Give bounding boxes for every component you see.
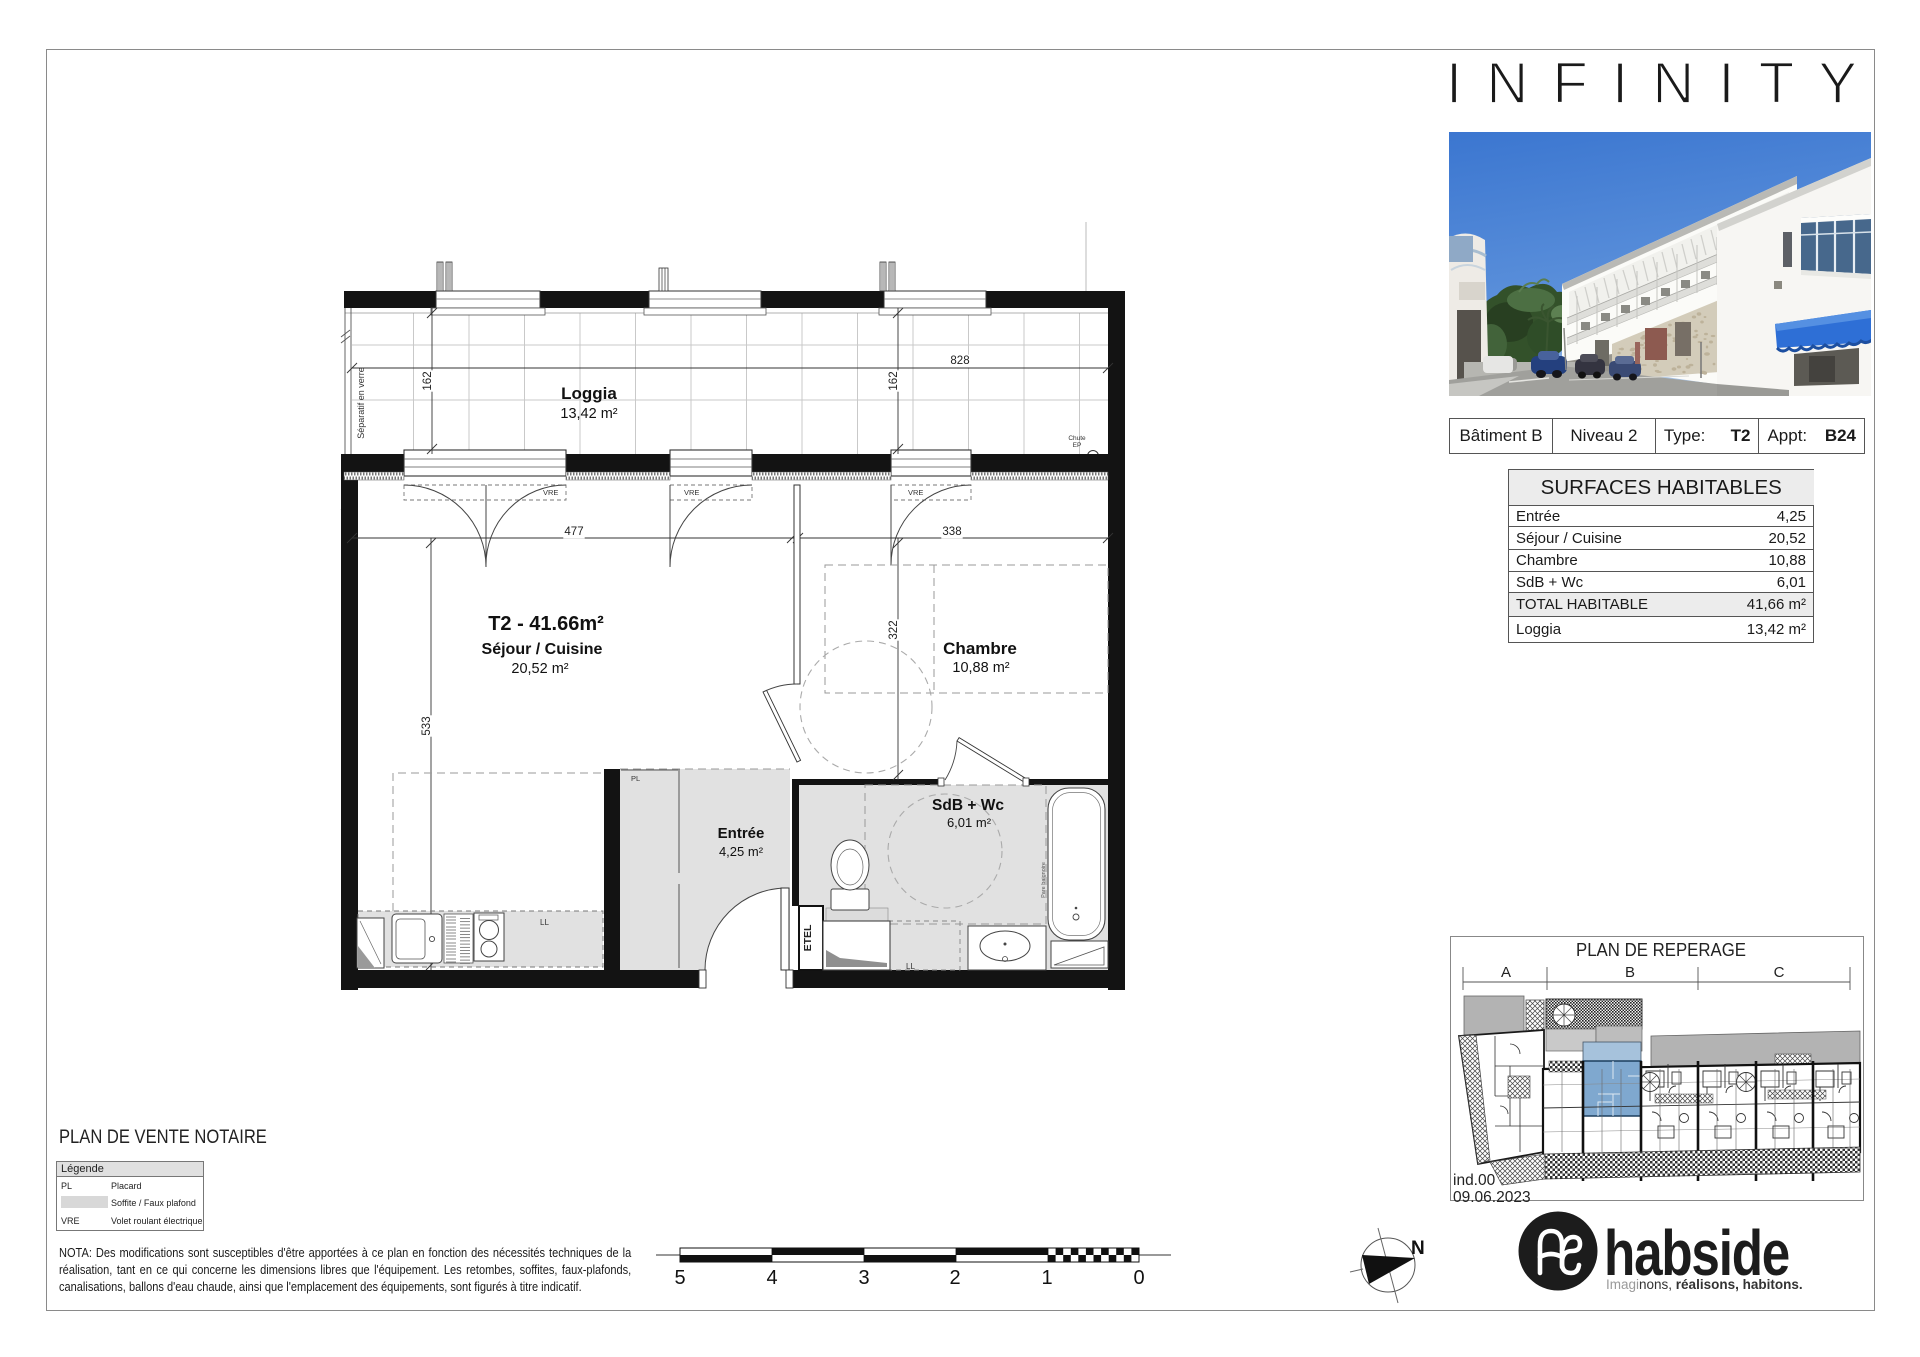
svg-text:Entrée: Entrée: [718, 825, 765, 842]
svg-text:ind.00: ind.00: [1453, 1172, 1496, 1189]
svg-text:828: 828: [950, 355, 969, 367]
svg-text:2: 2: [949, 1267, 960, 1289]
svg-text:VRE: VRE: [684, 488, 699, 497]
svg-text:Loggia: Loggia: [561, 384, 617, 403]
svg-text:C: C: [1774, 964, 1785, 981]
svg-text:533: 533: [421, 716, 433, 735]
svg-text:0: 0: [1133, 1267, 1144, 1289]
svg-text:4: 4: [766, 1267, 777, 1289]
svg-text:162: 162: [888, 371, 900, 390]
svg-text:162: 162: [422, 371, 434, 390]
svg-text:4,25 m²: 4,25 m²: [719, 844, 764, 859]
svg-text:PLAN DE REPERAGE: PLAN DE REPERAGE: [1576, 940, 1746, 960]
svg-text:Séjour / Cuisine: Séjour / Cuisine: [482, 641, 603, 658]
svg-text:Chute: Chute: [1068, 435, 1086, 442]
svg-text:PL: PL: [631, 774, 640, 783]
svg-text:13,42 m²: 13,42 m²: [560, 406, 617, 422]
svg-text:09.06.2023: 09.06.2023: [1453, 1189, 1531, 1206]
svg-text:6,01 m²: 6,01 m²: [947, 815, 992, 830]
svg-text:5: 5: [674, 1267, 685, 1289]
svg-text:10,88 m²: 10,88 m²: [952, 660, 1009, 676]
svg-text:ETEL: ETEL: [802, 924, 814, 951]
svg-text:SdB + Wc: SdB + Wc: [932, 797, 1004, 814]
svg-text:VRE: VRE: [908, 488, 923, 497]
svg-text:Séparatif en verre: Séparatif en verre: [356, 367, 366, 439]
svg-text:T2 - 41.66m²: T2 - 41.66m²: [488, 613, 604, 635]
svg-text:Chambre: Chambre: [943, 639, 1017, 658]
svg-text:322: 322: [888, 620, 900, 639]
svg-text:1: 1: [1041, 1267, 1052, 1289]
svg-text:20,52 m²: 20,52 m²: [511, 661, 568, 677]
svg-text:477: 477: [564, 526, 583, 538]
svg-text:EP: EP: [1073, 442, 1082, 449]
svg-text:N: N: [1411, 1238, 1425, 1259]
svg-text:LL: LL: [540, 918, 549, 927]
svg-text:VRE: VRE: [543, 488, 558, 497]
svg-text:338: 338: [942, 526, 961, 538]
svg-text:B: B: [1625, 964, 1635, 981]
svg-text:3: 3: [858, 1267, 869, 1289]
svg-text:A: A: [1501, 964, 1511, 981]
svg-text:LL: LL: [906, 962, 915, 971]
svg-text:Pare baignoire: Pare baignoire: [1041, 862, 1047, 898]
